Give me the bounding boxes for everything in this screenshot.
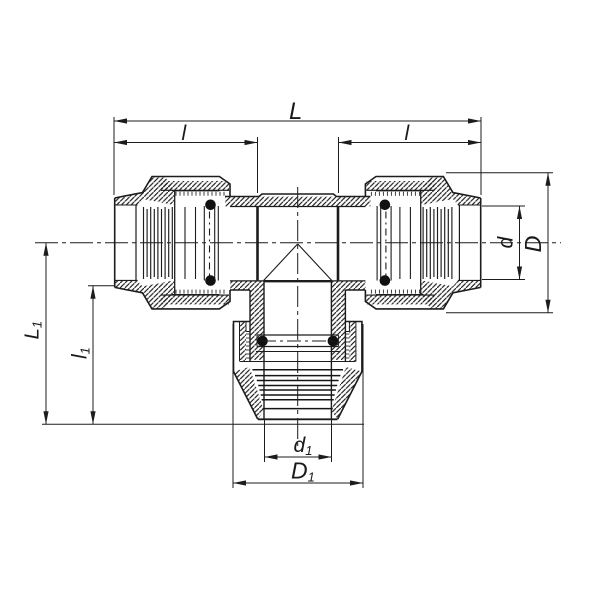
svg-text:d: d <box>495 236 518 249</box>
svg-text:L: L <box>289 98 302 125</box>
svg-text:D: D <box>520 236 546 253</box>
